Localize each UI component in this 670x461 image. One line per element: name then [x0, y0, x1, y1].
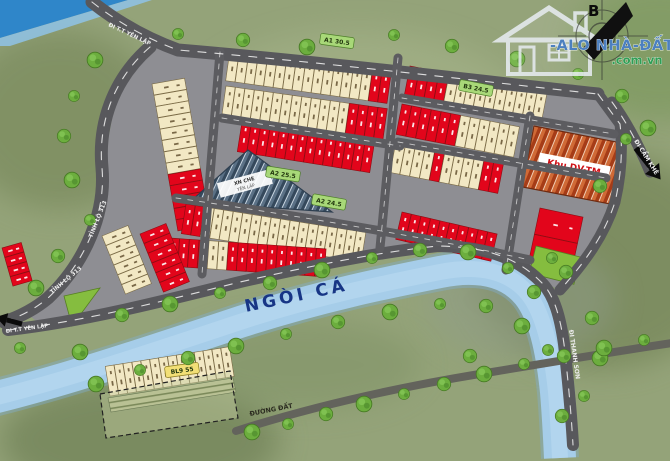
tree-icon: [398, 388, 409, 399]
tree-icon: [263, 276, 276, 289]
tree-icon: [51, 249, 64, 262]
tree-icon: [356, 396, 372, 412]
tree-icon: [559, 265, 572, 278]
tree-icon: [476, 366, 492, 382]
tree-icon: [64, 172, 80, 188]
tree-icon: [72, 344, 88, 360]
plot-sold: [246, 243, 257, 272]
tree-icon: [14, 342, 25, 353]
tree-icon: [463, 349, 476, 362]
master-plan-map: XN CHÈ YÊN LẬP Khu DV-TM: [0, 0, 670, 461]
tree-icon: [162, 296, 178, 312]
plot-sold: [227, 242, 238, 271]
tree-icon: [214, 287, 225, 298]
tree-icon: [593, 179, 606, 192]
tree-icon: [585, 311, 598, 324]
tree-icon: [413, 243, 426, 256]
tree-icon: [527, 285, 540, 298]
tree-icon: [546, 252, 557, 263]
tree-icon: [68, 90, 79, 101]
tree-icon: [388, 29, 399, 40]
tree-icon: [578, 390, 589, 401]
tree-icon: [366, 252, 377, 263]
plot-sold: [188, 239, 199, 268]
plot-sold: [236, 243, 247, 272]
tree-icon: [282, 418, 293, 429]
tree-icon: [57, 129, 70, 142]
tree-icon: [382, 304, 398, 320]
tree-icon: [228, 338, 244, 354]
tree-icon: [542, 344, 553, 355]
map-canvas: XN CHÈ YÊN LẬP Khu DV-TM: [0, 0, 670, 461]
tree-icon: [437, 377, 450, 390]
plot-available: [217, 241, 228, 270]
tree-icon: [555, 409, 568, 422]
tree-icon: [172, 28, 183, 39]
tree-icon: [88, 376, 104, 392]
tree-icon: [460, 244, 476, 260]
tree-icon: [518, 358, 529, 369]
tree-icon: [479, 299, 492, 312]
tree-icon: [434, 298, 445, 309]
tree-icon: [331, 315, 344, 328]
tree-icon: [115, 308, 128, 321]
tree-icon: [319, 407, 332, 420]
tree-icon: [445, 39, 458, 52]
tree-icon: [236, 33, 249, 46]
tree-icon: [244, 424, 260, 440]
tree-icon: [596, 340, 612, 356]
north-indicator: B: [588, 2, 599, 20]
tree-icon: [615, 89, 628, 102]
tree-icon: [87, 52, 103, 68]
tree-icon: [280, 328, 291, 339]
tree-icon: [640, 120, 656, 136]
tree-icon: [299, 39, 315, 55]
tree-icon: [514, 318, 530, 334]
tree-icon: [557, 349, 570, 362]
plot-sold: [256, 244, 267, 273]
tree-icon: [502, 262, 513, 273]
tree-icon: [314, 262, 330, 278]
tree-icon: [638, 334, 649, 345]
tree-icon: [28, 280, 44, 296]
tree-icon: [181, 351, 194, 364]
watermark-domain: .com.vn: [611, 53, 662, 67]
tree-icon: [134, 364, 145, 375]
tree-icon: [620, 133, 631, 144]
